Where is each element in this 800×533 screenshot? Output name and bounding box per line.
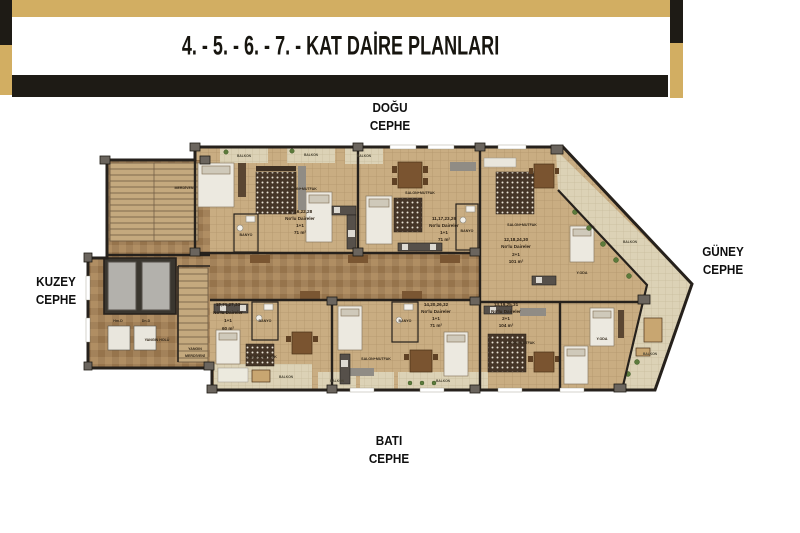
svg-text:104 m²: 104 m² <box>499 323 514 328</box>
svg-text:13,19,25,31: 13,19,25,31 <box>494 302 519 307</box>
svg-text:11,17,23,29: 11,17,23,29 <box>432 216 456 221</box>
merdiven-label: MERDİVEN <box>175 186 194 190</box>
elevator-cab-1 <box>108 262 136 310</box>
sofa <box>484 158 516 167</box>
page: 4. - 5. - 6. - 7. - KAT DAİRE PLANLARI D… <box>0 0 800 533</box>
svg-text:1+1: 1+1 <box>432 316 440 321</box>
sofa <box>520 308 546 316</box>
salon-label: SALON+MUTFAK <box>507 223 537 227</box>
dining-table <box>534 164 554 188</box>
entry-mat <box>440 255 460 263</box>
tv-unit <box>256 166 296 171</box>
salon-label: SALON+MUTFAK <box>405 191 435 195</box>
svg-text:15,21,27,33: 15,21,27,33 <box>216 302 241 307</box>
balcony-table <box>644 318 662 342</box>
svg-text:10,16,22,28: 10,16,22,28 <box>288 209 313 214</box>
svg-text:No'lu Daireler: No'lu Daireler <box>213 310 243 315</box>
svg-text:No'lu Daireler: No'lu Daireler <box>421 309 451 314</box>
svg-text:71 m²: 71 m² <box>438 237 450 242</box>
svg-text:14,20,26,32: 14,20,26,32 <box>424 302 449 307</box>
svg-text:1+1: 1+1 <box>440 230 448 235</box>
salon-label: SALON+MUTFAK <box>287 187 317 191</box>
balkon-label: BALKON <box>330 379 345 383</box>
banyo-label: BANYO <box>259 319 272 323</box>
svg-text:60 m²: 60 m² <box>222 326 234 331</box>
yangin-merdiveni-label-2: MERDİVENİ <box>185 354 205 358</box>
banyo-label: BANYO <box>399 319 412 323</box>
bedroom-label: Y.ODA <box>597 337 608 341</box>
svg-text:1+1: 1+1 <box>224 318 232 323</box>
elevator-1-label: Hm.D <box>113 319 123 323</box>
balkon-label: BALKON <box>623 240 638 244</box>
floor-plan: 10,16,22,28 No'lu Daireler 1+1 71 m² 11,… <box>0 0 800 533</box>
balkon-label: BALKON <box>357 154 372 158</box>
yangin-holu-label: YANGIN HOLÜ <box>145 337 170 342</box>
elevator-lobby-1 <box>108 326 130 350</box>
banyo-label: BANYO <box>240 233 253 237</box>
salon-label: SALON+MUTFAK <box>505 341 535 345</box>
svg-text:No'lu Daireler: No'lu Daireler <box>285 216 315 221</box>
wardrobe <box>238 163 246 197</box>
salon-label: SALON+MUTFAK <box>247 355 277 359</box>
balkon-label: BALKON <box>304 153 319 157</box>
svg-text:2+1: 2+1 <box>512 252 520 257</box>
svg-text:71 m²: 71 m² <box>294 230 306 235</box>
elevator-2-label: Dn.D <box>142 319 151 323</box>
svg-text:No'lu Daireler: No'lu Daireler <box>429 223 459 228</box>
balkon-label: BALKON <box>279 375 294 379</box>
banyo-label: BANYO <box>461 229 474 233</box>
sofa <box>450 162 476 171</box>
svg-text:1+1: 1+1 <box>296 223 304 228</box>
wardrobe <box>618 310 624 338</box>
svg-text:12,18,24,30: 12,18,24,30 <box>504 237 529 242</box>
dining-table <box>534 352 554 372</box>
bedroom-label: Y.ODA <box>577 271 588 275</box>
entry-mat <box>300 291 320 299</box>
balcony-sofa <box>218 368 248 382</box>
balcony-table <box>252 370 270 382</box>
rug <box>394 198 422 232</box>
entry-mat <box>250 255 270 263</box>
svg-text:2+1: 2+1 <box>502 316 510 321</box>
elevator-cab-2 <box>142 262 170 310</box>
balkon-label: BALKON <box>436 379 451 383</box>
entry-mat <box>402 291 422 299</box>
balkon-label: BALKON <box>643 352 658 356</box>
svg-text:No'lu Daireler: No'lu Daireler <box>491 309 521 314</box>
kitchen-counter <box>532 276 556 285</box>
dining-table <box>292 332 312 354</box>
salon-label: SALON+MUTFAK <box>361 357 391 361</box>
rug <box>496 172 534 214</box>
rug <box>256 172 296 214</box>
svg-text:No'lu Daireler: No'lu Daireler <box>501 244 531 249</box>
rug <box>488 334 526 372</box>
balkon-label: BALKON <box>237 154 252 158</box>
sofa <box>348 368 374 376</box>
yangin-merdiveni-label-1: YANGIN <box>188 347 202 351</box>
main-stairs <box>110 163 198 241</box>
corridor-floor <box>195 253 480 300</box>
dining-table <box>398 162 422 188</box>
svg-text:71 m²: 71 m² <box>430 323 442 328</box>
dining-table <box>410 350 432 372</box>
svg-text:101 m²: 101 m² <box>509 259 524 264</box>
